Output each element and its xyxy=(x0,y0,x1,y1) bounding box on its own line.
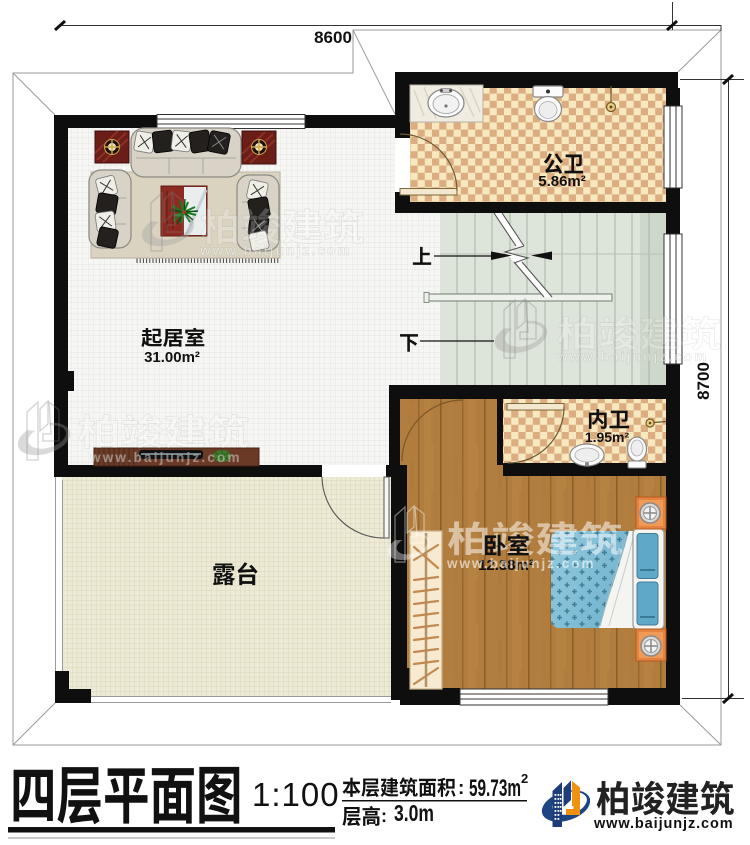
svg-text:8700: 8700 xyxy=(694,362,713,400)
svg-text:www.baijunjz.com: www.baijunjz.com xyxy=(89,450,242,465)
svg-text:www.baijunjz.com: www.baijunjz.com xyxy=(446,556,596,571)
svg-text::: : xyxy=(381,806,387,826)
svg-text:www.baijunjz.com: www.baijunjz.com xyxy=(593,816,734,832)
svg-text:www.baijunjz.com: www.baijunjz.com xyxy=(199,243,352,258)
svg-text:8600: 8600 xyxy=(314,28,352,47)
svg-text:31.00m²: 31.00m² xyxy=(144,349,200,366)
svg-text:2: 2 xyxy=(521,771,528,786)
svg-text:59.73m: 59.73m xyxy=(469,775,521,802)
svg-text:3.0m: 3.0m xyxy=(394,800,434,826)
svg-text::: : xyxy=(458,778,464,799)
svg-text:www.baijunjz.com: www.baijunjz.com xyxy=(556,349,709,364)
svg-text:1.95m²: 1.95m² xyxy=(585,429,630,445)
svg-text:1:100: 1:100 xyxy=(252,776,340,813)
svg-text:5.86m²: 5.86m² xyxy=(538,173,586,190)
